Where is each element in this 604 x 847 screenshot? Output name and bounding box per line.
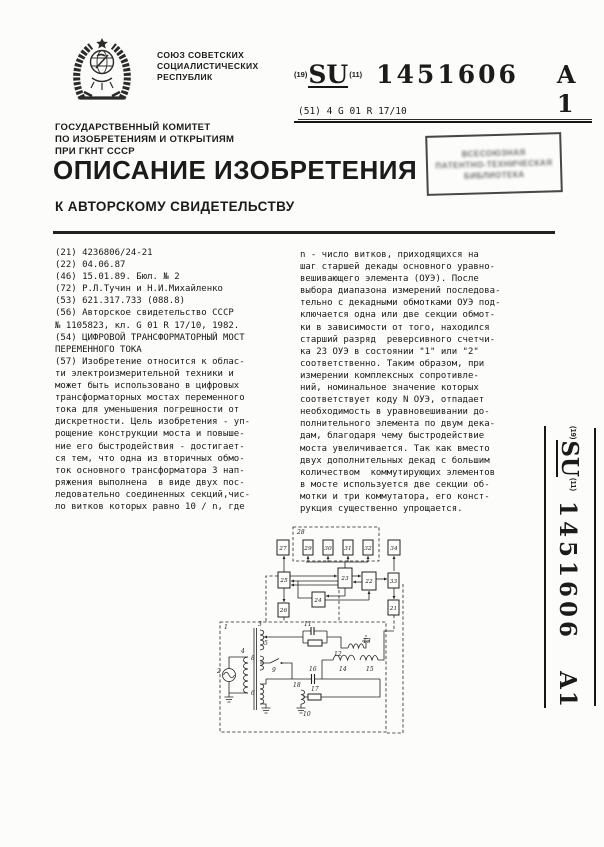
svg-text:14: 14 — [339, 666, 347, 673]
svg-text:12: 12 — [334, 651, 342, 658]
publication-number: 1451606 — [555, 501, 582, 641]
junction-dot — [281, 662, 283, 664]
ipc-code: G 01 R 17/10 — [338, 106, 407, 120]
svg-text:9: 9 — [272, 667, 276, 674]
svg-text:23: 23 — [340, 576, 349, 582]
svg-text:32: 32 — [364, 546, 372, 552]
svg-text:33: 33 — [390, 579, 398, 585]
circuit-diagram: 27 28 29 30 31 32 34 25 23 22 33 24 26 2… — [208, 524, 458, 739]
svg-text:28: 28 — [296, 529, 305, 536]
country-code: SU — [308, 64, 348, 88]
svg-text:13: 13 — [363, 638, 371, 645]
inid-19: (19) — [570, 426, 579, 439]
star-icon — [96, 38, 108, 49]
svg-text:30: 30 — [324, 546, 332, 552]
svg-text:1: 1 — [224, 624, 228, 631]
svg-text:10: 10 — [303, 711, 311, 718]
committee-name: ГОСУДАРСТВЕННЫЙ КОМИТЕТ ПО ИЗОБРЕТЕНИЯМ … — [55, 122, 234, 158]
svg-text:3: 3 — [258, 621, 262, 628]
svg-text:25: 25 — [279, 578, 288, 584]
diagram-blocks — [277, 540, 400, 700]
svg-text:2: 2 — [216, 668, 221, 675]
publication-number: 1451606 — [376, 60, 519, 89]
svg-text:18: 18 — [293, 682, 301, 689]
svg-text:16: 16 — [309, 666, 317, 673]
capacitor-in-block-11 — [311, 627, 314, 635]
ussr-coat-of-arms — [70, 36, 134, 106]
inid-19: (19) — [294, 70, 307, 79]
svg-text:22: 22 — [364, 579, 373, 585]
vertical-publication-number: (19) SU (11) 1451606 A1 — [544, 426, 590, 708]
svg-text:27: 27 — [278, 546, 287, 552]
document-subtitle: К АВТОРСКОМУ СВИДЕТЕЛЬСТВУ — [55, 199, 295, 214]
svg-text:5: 5 — [264, 640, 268, 647]
svg-text:15: 15 — [366, 666, 374, 673]
country-name: СОЮЗ СОВЕТСКИХ СОЦИАЛИСТИЧЕСКИХ РЕСПУБЛИ… — [157, 50, 259, 83]
block-28-outline — [293, 527, 379, 561]
stamp-line: БИБЛИОТЕКА — [464, 169, 525, 182]
capacitor-16 — [312, 674, 315, 684]
ipc-prefix: (51) 4 — [298, 106, 338, 117]
abstract-right-column: n - число витков, приходящихся на шаг ст… — [300, 249, 552, 515]
svg-text:4: 4 — [240, 648, 245, 655]
document-title: ОПИСАНИЕ ИЗОБРЕТЕНИЯ — [53, 155, 417, 186]
svg-text:29: 29 — [303, 546, 312, 552]
svg-text:31: 31 — [344, 546, 351, 552]
inid-11: (11) — [570, 478, 579, 491]
header-divider — [53, 231, 555, 234]
country-code: SU — [556, 440, 580, 477]
generator-symbol — [223, 669, 236, 682]
svg-text:8: 8 — [251, 655, 255, 662]
svg-text:34: 34 — [390, 546, 398, 552]
svg-text:17: 17 — [311, 686, 319, 693]
svg-text:26: 26 — [279, 608, 288, 614]
svg-text:11: 11 — [304, 621, 312, 628]
library-stamp: ВСЕСОЮЗНАЯ ПАТЕНТНО-ТЕХНИЧЕСКАЯ БИБЛИОТЕ… — [425, 132, 563, 196]
patent-document-page: СОЮЗ СОВЕТСКИХ СОЦИАЛИСТИЧЕСКИХ РЕСПУБЛИ… — [0, 0, 604, 847]
svg-text:21: 21 — [389, 606, 397, 612]
signal-wires — [264, 556, 394, 637]
inid-11: (11) — [349, 70, 362, 79]
ipc-classification-row: (51) 4 G 01 R 17/10 — [298, 106, 592, 120]
svg-text:6: 6 — [251, 690, 255, 697]
bibliographic-and-abstract-left-column: (21) 4236806/24-21 (22) 04.06.87 (46) 15… — [55, 247, 297, 513]
svg-text:24: 24 — [313, 598, 322, 604]
margin-rule — [594, 428, 596, 706]
kind-code: A1 — [555, 671, 582, 709]
